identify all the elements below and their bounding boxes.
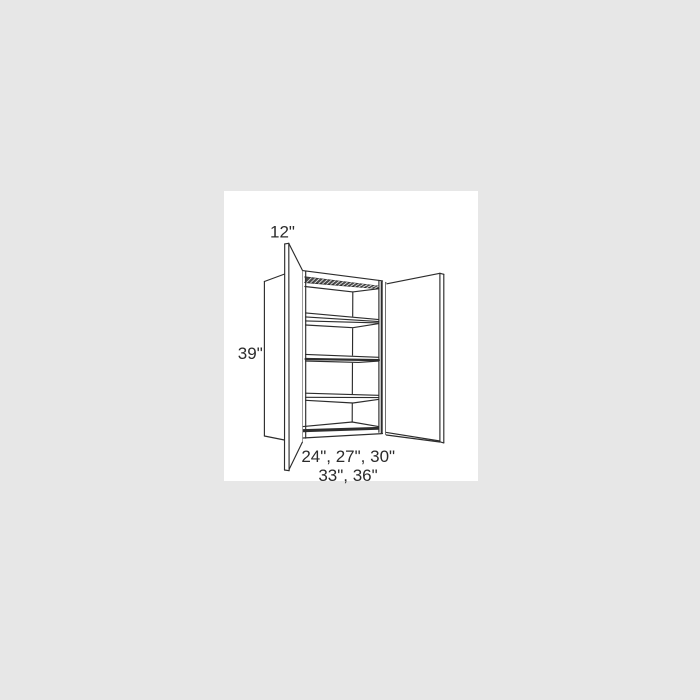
svg-text:39": 39" [238, 344, 263, 363]
svg-text:12": 12" [270, 222, 295, 241]
svg-text:33", 36": 33", 36" [318, 466, 377, 485]
svg-text:24", 27", 30": 24", 27", 30" [301, 447, 395, 466]
